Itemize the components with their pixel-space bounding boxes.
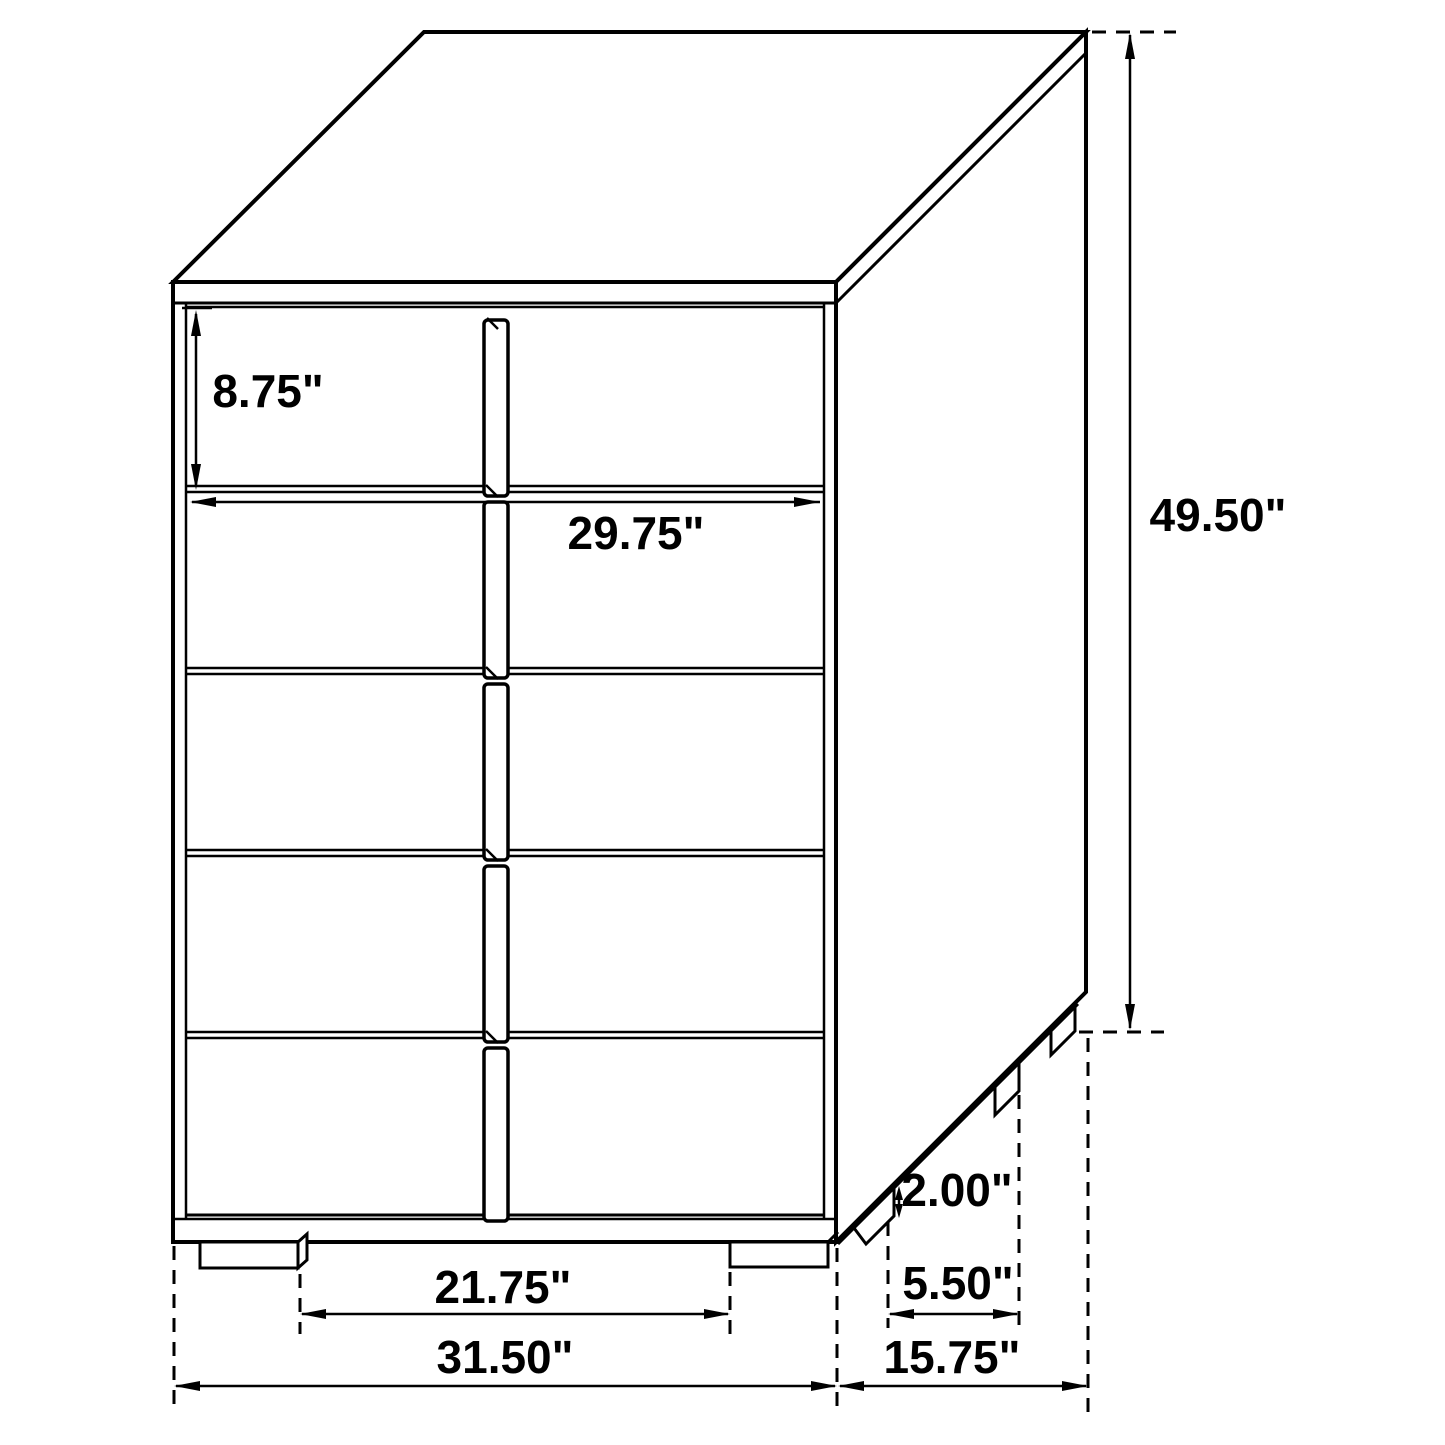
drawer-handles [484, 318, 508, 1221]
dim-label-foot-spacing-side: 5.50" [902, 1257, 1013, 1309]
dim-label-overall-width: 31.50" [437, 1331, 574, 1383]
dim-label-interior-width: 29.75" [568, 507, 705, 559]
dim-label-foot-height: 2.00" [901, 1164, 1012, 1216]
drawer-handle [484, 866, 508, 1042]
dim-label-foot-spacing-front: 21.75" [435, 1261, 572, 1313]
dim-label-overall-depth: 15.75" [884, 1331, 1021, 1383]
drawer-handle [484, 684, 508, 860]
drawer-handle [484, 1048, 508, 1221]
chest-dimension-diagram-page: 8.75" 29.75" 49.50" 2.00" 5.50" 21.75" 3… [0, 0, 1445, 1445]
drawer-handle [484, 320, 508, 496]
dim-label-drawer-height: 8.75" [212, 365, 323, 417]
dim-foot-spacing-side [888, 1309, 1019, 1319]
drawer-handle [484, 502, 508, 678]
chest-dimension-diagram: 8.75" 29.75" 49.50" 2.00" 5.50" 21.75" 3… [0, 0, 1445, 1445]
dim-overall-height [1125, 33, 1135, 1030]
dim-label-overall-height: 49.50" [1150, 489, 1287, 541]
